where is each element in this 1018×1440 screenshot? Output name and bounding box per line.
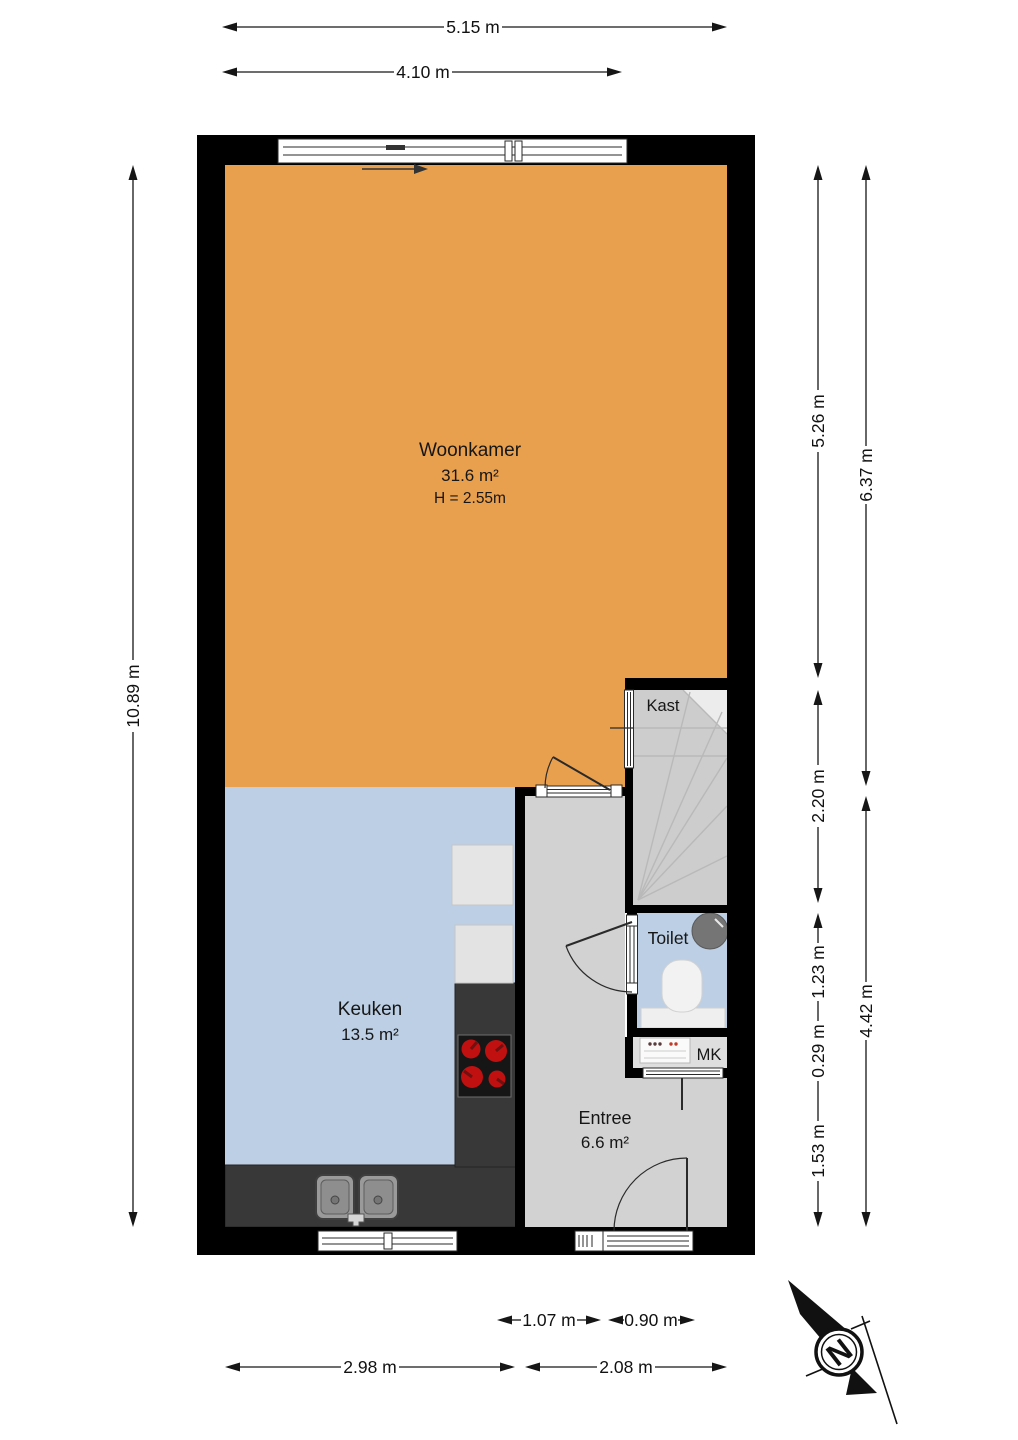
- kitchen-window: [318, 1231, 457, 1251]
- wall-kast-top: [625, 678, 727, 690]
- mk-label: MK: [697, 1046, 722, 1064]
- woonkamer-label: Woonkamer: [419, 440, 522, 461]
- dim-right-inner: 5.26 m 2.20 m 1.23 m 0.29 m 1.53 m: [808, 165, 828, 1227]
- svg-text:1.07 m: 1.07 m: [522, 1310, 576, 1330]
- dim-left-total: 10.89 m: [123, 165, 143, 1227]
- svg-text:1.53 m: 1.53 m: [808, 1124, 828, 1178]
- svg-text:5.15 m: 5.15 m: [446, 17, 500, 37]
- counter-appliance-lower: [455, 925, 513, 983]
- stove-icon: [458, 1035, 511, 1097]
- svg-text:2.98 m: 2.98 m: [343, 1357, 397, 1377]
- svg-text:0.90 m: 0.90 m: [624, 1310, 678, 1330]
- meter-cabinet-icon: [640, 1038, 690, 1063]
- keuken-label: Keuken: [338, 999, 402, 1020]
- svg-text:1.23 m: 1.23 m: [808, 945, 828, 999]
- keuken-area: 13.5 m²: [341, 1025, 399, 1044]
- svg-text:4.10 m: 4.10 m: [396, 62, 450, 82]
- svg-text:5.26 m: 5.26 m: [808, 394, 828, 448]
- toilet-bowl-icon: [662, 960, 702, 1012]
- svg-text:0.29 m: 0.29 m: [808, 1024, 828, 1078]
- svg-text:2.20 m: 2.20 m: [808, 769, 828, 823]
- svg-text:10.89 m: 10.89 m: [123, 664, 143, 727]
- dim-bottom-inner: 1.07 m 0.90 m: [497, 1310, 695, 1330]
- compass-north-icon: N: [788, 1280, 897, 1424]
- corner-basin-icon: [692, 913, 728, 949]
- wall-kast-toilet: [625, 905, 727, 913]
- floorplan-canvas: Woonkamer 31.6 m² H = 2.55m Keuken 13.5 …: [0, 0, 1018, 1440]
- kast-stairs-floor: [633, 690, 727, 905]
- kast-label: Kast: [646, 697, 679, 715]
- dim-right-outer: 6.37 m 4.42 m: [856, 165, 876, 1227]
- entree-label: Entree: [578, 1108, 631, 1128]
- dim-top-inner: 4.10 m: [222, 62, 622, 82]
- svg-text:6.37 m: 6.37 m: [856, 448, 876, 502]
- svg-text:2.08 m: 2.08 m: [599, 1357, 653, 1377]
- toilet-label: Toilet: [648, 928, 689, 948]
- svg-text:4.42 m: 4.42 m: [856, 984, 876, 1038]
- floorplan-svg: Woonkamer 31.6 m² H = 2.55m Keuken 13.5 …: [0, 0, 1018, 1440]
- woonkamer-area: 31.6 m²: [441, 466, 499, 485]
- counter-appliance-upper: [452, 845, 513, 905]
- entree-area: 6.6 m²: [581, 1133, 630, 1152]
- dim-bottom-outer: 2.98 m 2.08 m: [225, 1357, 727, 1377]
- wall-keuken-entree: [515, 787, 525, 1227]
- dim-top-outer: 5.15 m: [222, 17, 727, 37]
- wall-toilet-mk: [627, 1028, 727, 1037]
- woonkamer-height: H = 2.55m: [434, 490, 506, 507]
